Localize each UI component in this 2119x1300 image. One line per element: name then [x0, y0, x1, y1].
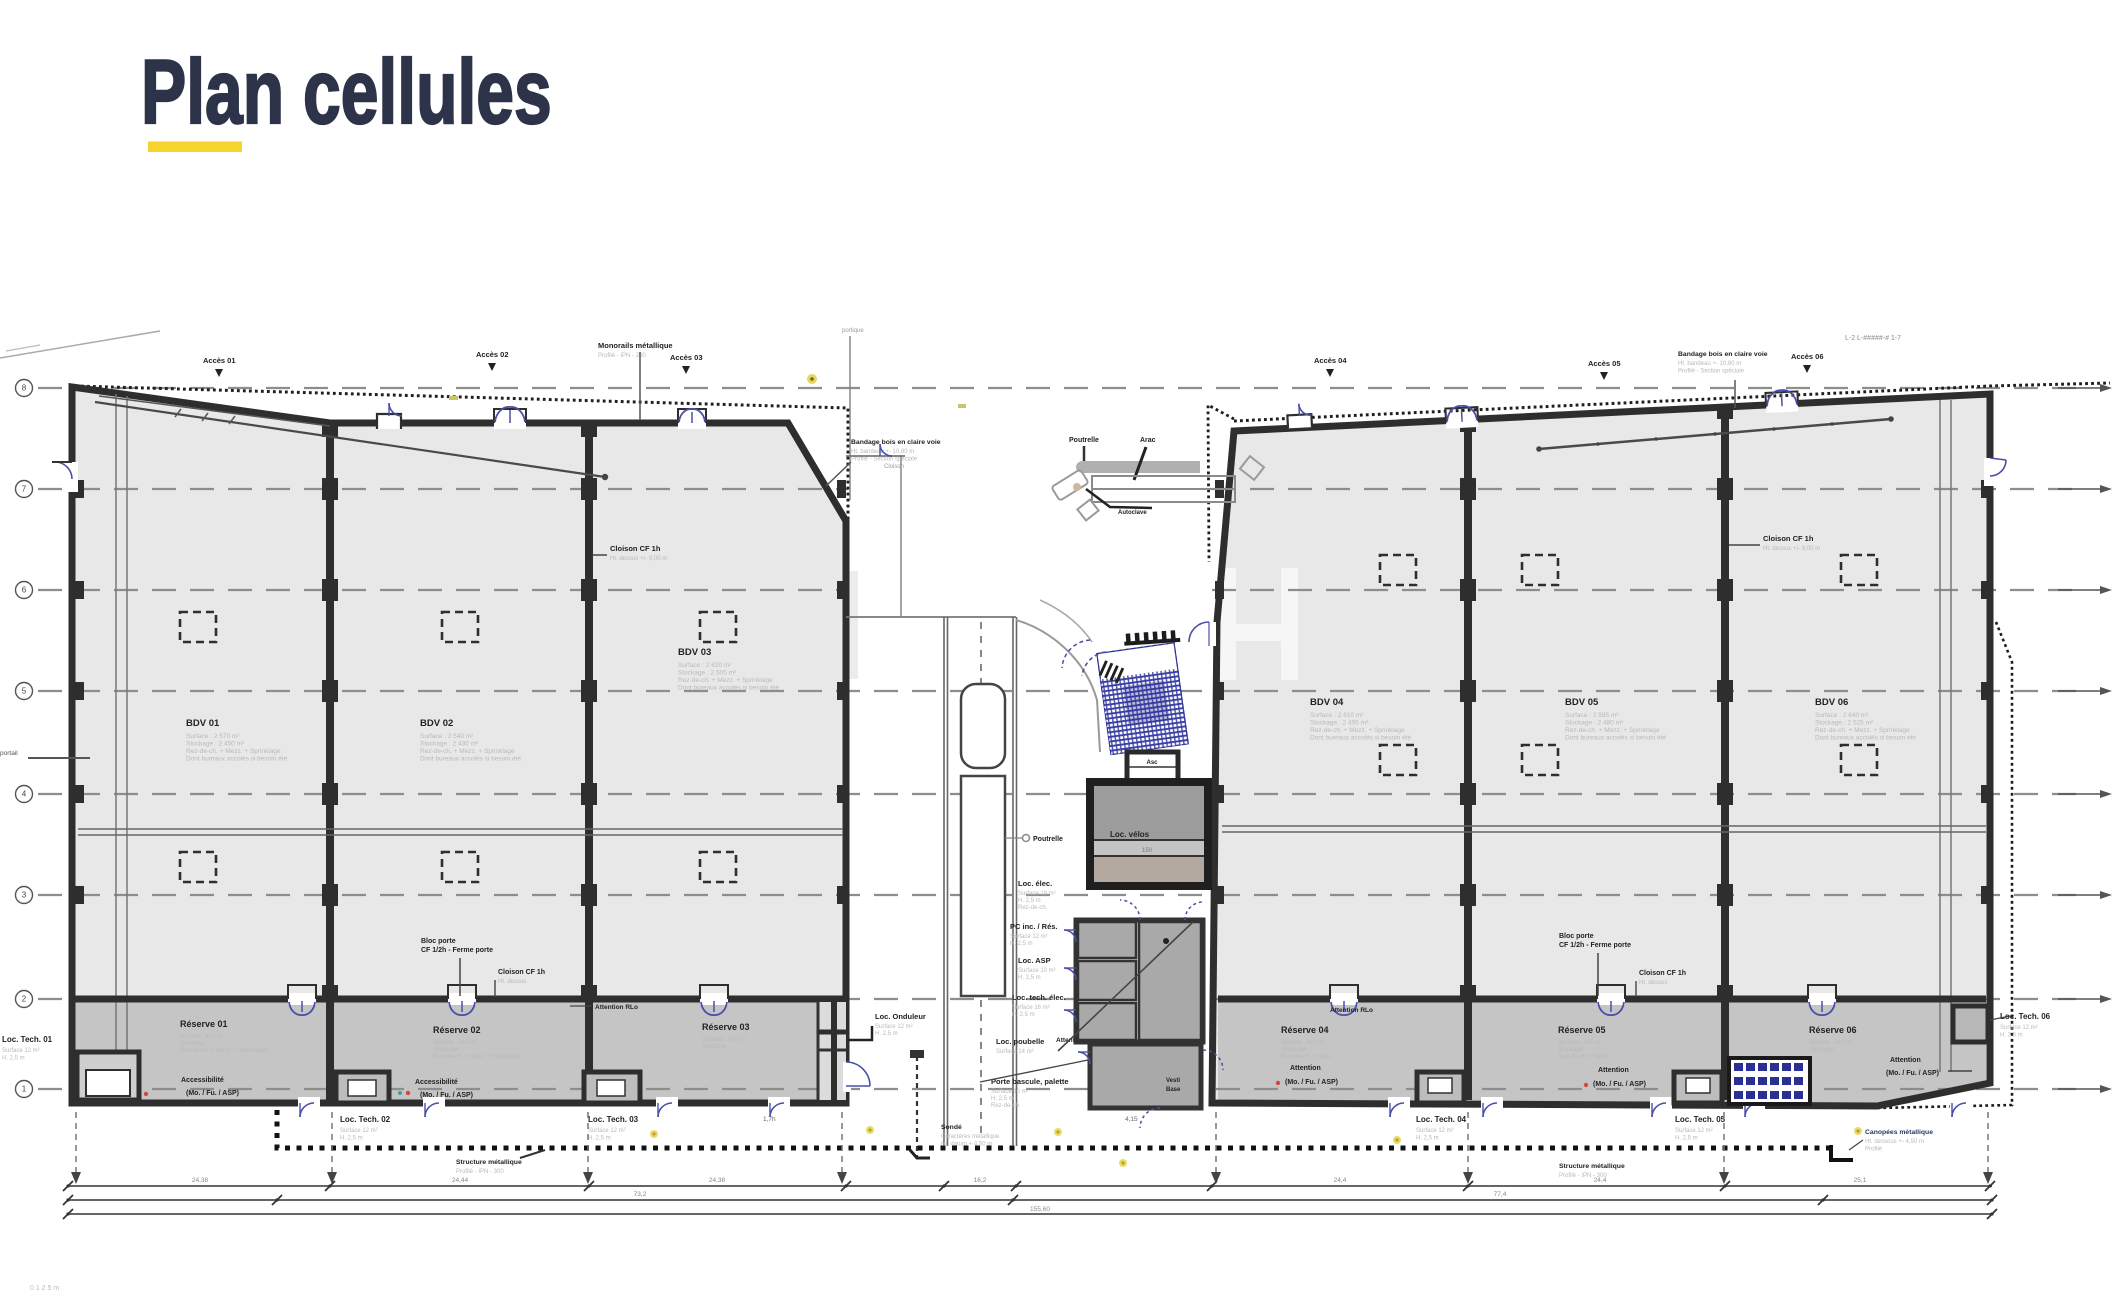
- svg-text:Loc. Tech. 03: Loc. Tech. 03: [588, 1115, 639, 1124]
- svg-text:Cloison CF 1h: Cloison CF 1h: [1763, 534, 1814, 543]
- svg-text:Stockage: Stockage: [702, 1044, 728, 1050]
- svg-text:H. 2,5 m: H. 2,5 m: [1675, 1136, 1698, 1142]
- svg-text:Surface 12 m²: Surface 12 m²: [588, 1128, 626, 1134]
- svg-text:Rez-de-ch. + Mezz.: Rez-de-ch. + Mezz.: [1281, 1054, 1334, 1060]
- svg-text:Profilé - IPN - 200: Profilé - IPN - 200: [598, 353, 646, 359]
- svg-text:Rez-de-ch. + Mezz. + Sprinklag: Rez-de-ch. + Mezz. + Sprinklage: [1565, 727, 1660, 734]
- svg-text:Profilé: Profilé: [1865, 1147, 1883, 1153]
- svg-text:H. 2,5 m: H. 2,5 m: [340, 1136, 363, 1142]
- svg-text:Dont bureaux accolés si besoin: Dont bureaux accolés si besoin été: [186, 756, 288, 763]
- svg-text:24,44: 24,44: [452, 1177, 469, 1184]
- svg-text:Rez-de-ch. + Mezz. + Sprinklag: Rez-de-ch. + Mezz. + Sprinklage: [1815, 727, 1910, 734]
- svg-text:portique: portique: [842, 328, 864, 334]
- svg-text:Surface : 2 620 m²: Surface : 2 620 m²: [678, 662, 732, 669]
- svg-text:Base: Base: [1166, 1087, 1181, 1093]
- svg-text:Surface : 2 570 m²: Surface : 2 570 m²: [186, 733, 240, 740]
- svg-text:Surface : 2 595 m²: Surface : 2 595 m²: [1565, 712, 1619, 719]
- svg-text:Profilé - Section spéciale: Profilé - Section spéciale: [1678, 369, 1745, 375]
- svg-text:Asc: Asc: [1146, 760, 1158, 766]
- svg-text:Stockage: Stockage: [1281, 1047, 1307, 1053]
- svg-text:Rez-de-ch. + Mezz. + Sprinklag: Rez-de-ch. + Mezz. + Sprinklage: [433, 1054, 521, 1060]
- svg-text:Bloc porte: Bloc porte: [421, 938, 456, 945]
- svg-text:Ht. dessus: Ht. dessus: [498, 979, 526, 985]
- svg-text:Loc. poubelle: Loc. poubelle: [996, 1037, 1044, 1046]
- svg-text:Dont bureaux accolés si besoin: Dont bureaux accolés si besoin été: [1565, 735, 1667, 742]
- svg-text:Autoclave: Autoclave: [1118, 510, 1147, 516]
- svg-text:Surface 10 m²: Surface 10 m²: [991, 1089, 1029, 1095]
- svg-text:Stockage: Stockage: [1558, 1047, 1584, 1053]
- svg-text:Ht. dessus +/- 9,00 m: Ht. dessus +/- 9,00 m: [610, 556, 667, 562]
- svg-text:2: 2: [22, 995, 27, 1004]
- svg-text:Surface : 2 540 m²: Surface : 2 540 m²: [420, 733, 474, 740]
- svg-text:H. 2,5 m: H. 2,5 m: [2000, 1033, 2023, 1039]
- svg-text:Structure métallique: Structure métallique: [1559, 1163, 1625, 1170]
- svg-text:Accès 03: Accès 03: [670, 353, 703, 362]
- svg-text:Attention: Attention: [1598, 1067, 1629, 1074]
- svg-text:Surface 12 m²: Surface 12 m²: [2000, 1025, 2038, 1031]
- svg-text:Ht. dessous +- 4,50 m: Ht. dessous +- 4,50 m: [1865, 1139, 1924, 1145]
- svg-text:Profilé - Section spéciale: Profilé - Section spéciale: [851, 457, 918, 463]
- svg-text:Rez-de-ch. + Mezz. + Sprinklag: Rez-de-ch. + Mezz. + Sprinklage: [186, 748, 281, 755]
- svg-text:Bandage bois en claire voie: Bandage bois en claire voie: [851, 439, 941, 446]
- svg-text:Stockage : 2 495 m²: Stockage : 2 495 m²: [1310, 720, 1369, 727]
- svg-text:Accessibilité: Accessibilité: [415, 1079, 458, 1086]
- svg-text:Accès 04: Accès 04: [1314, 356, 1347, 365]
- svg-text:Stockage : 2 480 m²: Stockage : 2 480 m²: [1565, 720, 1624, 727]
- svg-text:25,1: 25,1: [1854, 1177, 1867, 1184]
- svg-text:Réserve 04: Réserve 04: [1281, 1025, 1329, 1035]
- svg-text:Accès 01: Accès 01: [203, 356, 236, 365]
- svg-text:Réserve 06: Réserve 06: [1809, 1025, 1857, 1035]
- svg-text:Surface : 415 m²: Surface : 415 m²: [433, 1040, 477, 1046]
- svg-text:Surface : 2 640 m²: Surface : 2 640 m²: [1815, 712, 1869, 719]
- svg-text:(Mo. / Fu. / ASP): (Mo. / Fu. / ASP): [1593, 1081, 1646, 1088]
- svg-text:Ht. dessus +/- 9,00 m: Ht. dessus +/- 9,00 m: [1763, 546, 1820, 552]
- svg-text:Canopées métallique: Canopées métallique: [1865, 1129, 1933, 1136]
- svg-text:24,4: 24,4: [1594, 1177, 1607, 1184]
- svg-text:Bandage bois en claire voie: Bandage bois en claire voie: [1678, 351, 1768, 358]
- svg-text:H. 2,5 m: H. 2,5 m: [991, 1096, 1014, 1102]
- svg-text:(Mo. / Fu. / ASP): (Mo. / Fu. / ASP): [186, 1090, 239, 1097]
- svg-text:Attention RLo: Attention RLo: [1330, 1007, 1373, 1014]
- svg-text:BDV 04: BDV 04: [1310, 697, 1344, 708]
- svg-text:16,2: 16,2: [974, 1177, 987, 1184]
- svg-text:Surface 16 m²: Surface 16 m²: [1012, 1005, 1050, 1011]
- svg-text:L-2 L-#####-# 1-7: L-2 L-#####-# 1-7: [1845, 335, 1901, 342]
- svg-text:Dont bureaux accolés si besoin: Dont bureaux accolés si besoin été: [1815, 735, 1917, 742]
- svg-text:Stockage : 2 525 m²: Stockage : 2 525 m²: [1815, 720, 1874, 727]
- svg-text:(Mo. / Fu. / ASP): (Mo. / Fu. / ASP): [1886, 1070, 1939, 1077]
- svg-text:24,38: 24,38: [192, 1177, 209, 1184]
- svg-text:H. 2,5 m: H. 2,5 m: [1416, 1136, 1439, 1142]
- svg-text:Cloison CF 1h: Cloison CF 1h: [498, 969, 545, 976]
- svg-text:H. 2,5 m: H. 2,5 m: [875, 1031, 898, 1037]
- svg-text:Réserve 02: Réserve 02: [433, 1025, 481, 1035]
- svg-text:Loc. élec.: Loc. élec.: [1018, 879, 1052, 888]
- svg-text:Poutrelle: Poutrelle: [1033, 836, 1063, 843]
- svg-text:Poutrelle: Poutrelle: [1069, 437, 1099, 444]
- svg-text:H. 2,5 m: H. 2,5 m: [1018, 898, 1041, 904]
- svg-text:(Mo. / Fu. / ASP): (Mo. / Fu. / ASP): [1285, 1079, 1338, 1086]
- svg-text:H. 2,5 m: H. 2,5 m: [588, 1136, 611, 1142]
- svg-text:3: 3: [22, 891, 27, 900]
- svg-text:Surface 10 m²: Surface 10 m²: [1018, 968, 1056, 974]
- svg-text:CF 1/2h - Ferme porte: CF 1/2h - Ferme porte: [1559, 942, 1631, 949]
- svg-text:Attention: Attention: [1890, 1057, 1921, 1064]
- svg-text:Réserve 03: Réserve 03: [702, 1022, 750, 1032]
- svg-text:Rez-de-ch. + Mezz. + Sprinklag: Rez-de-ch. + Mezz. + Sprinklage: [1310, 727, 1405, 734]
- svg-text:PC inc. / Rés.: PC inc. / Rés.: [1010, 922, 1058, 931]
- svg-text:Vesti: Vesti: [1166, 1078, 1180, 1084]
- svg-text:Loc. Tech. 05: Loc. Tech. 05: [1675, 1115, 1726, 1124]
- svg-text:7: 7: [22, 485, 27, 494]
- svg-text:BDV 01: BDV 01: [186, 718, 220, 729]
- svg-text:Stockage: Stockage: [180, 1041, 206, 1047]
- svg-text:Surface : 415 m²: Surface : 415 m²: [1558, 1040, 1602, 1046]
- svg-text:Attention RLo: Attention RLo: [595, 1004, 638, 1011]
- svg-text:Dont bureaux accolés si besoin: Dont bureaux accolés si besoin été: [678, 685, 780, 692]
- svg-text:Stockage: Stockage: [433, 1047, 459, 1053]
- svg-text:73,2: 73,2: [634, 1191, 647, 1198]
- svg-text:Structure métallique: Structure métallique: [456, 1159, 522, 1166]
- svg-text:Réserve 05: Réserve 05: [1558, 1025, 1606, 1035]
- svg-text:Surface 12 m²: Surface 12 m²: [875, 1024, 913, 1030]
- svg-text:BDV 05: BDV 05: [1565, 697, 1599, 708]
- svg-text:Sondé: Sondé: [941, 1124, 962, 1131]
- svg-text:Loc. Tech. 01: Loc. Tech. 01: [2, 1035, 53, 1044]
- svg-text:Surface 14 m²: Surface 14 m²: [996, 1049, 1034, 1055]
- svg-text:Stockage : 2 430 m²: Stockage : 2 430 m²: [420, 741, 479, 748]
- svg-text:Caractères métallique: Caractères métallique: [941, 1134, 1000, 1140]
- svg-text:Surface 12 m²: Surface 12 m²: [1675, 1128, 1713, 1134]
- svg-text:Surface : 420 m²: Surface : 420 m²: [1281, 1040, 1325, 1046]
- svg-text:Monorails métallique: Monorails métallique: [598, 341, 673, 350]
- svg-text:0 1 2 5 m: 0 1 2 5 m: [30, 1285, 59, 1292]
- svg-text:Accès 02: Accès 02: [476, 350, 509, 359]
- svg-text:H. 2,5 m: H. 2,5 m: [1010, 941, 1033, 947]
- svg-text:Ht. bandeau +- 10,80 m: Ht. bandeau +- 10,80 m: [1678, 361, 1741, 367]
- svg-text:Loc. Tech. 02: Loc. Tech. 02: [340, 1115, 391, 1124]
- svg-text:150: 150: [1142, 848, 1153, 854]
- svg-text:Bloc porte: Bloc porte: [1559, 933, 1594, 940]
- svg-text:Surface 12 m²: Surface 12 m²: [1416, 1128, 1454, 1134]
- svg-text:CF 1/2h - Ferme porte: CF 1/2h - Ferme porte: [421, 947, 493, 954]
- svg-text:BDV 06: BDV 06: [1815, 697, 1848, 708]
- svg-text:Accès 05: Accès 05: [1588, 359, 1621, 368]
- svg-text:24,4: 24,4: [1334, 1177, 1347, 1184]
- svg-text:Loc. Onduleur: Loc. Onduleur: [875, 1012, 926, 1021]
- svg-text:Porte bascule, palette: Porte bascule, palette: [991, 1077, 1069, 1086]
- svg-text:Surface : 410 m²: Surface : 410 m²: [702, 1037, 746, 1043]
- svg-text:4: 4: [22, 790, 27, 799]
- svg-text:4,15: 4,15: [1125, 1116, 1138, 1123]
- svg-text:Ht. datum + 4,50 m: Ht. datum + 4,50 m: [941, 1142, 992, 1148]
- svg-text:Dont bureaux accolés si besoin: Dont bureaux accolés si besoin été: [1310, 735, 1412, 742]
- svg-text:Surface 12 m²: Surface 12 m²: [2, 1048, 40, 1054]
- svg-text:H. 2,5 m: H. 2,5 m: [1018, 975, 1041, 981]
- svg-text:Cloison CF 1h: Cloison CF 1h: [610, 544, 661, 553]
- svg-text:Ht. dessus: Ht. dessus: [1639, 980, 1667, 986]
- svg-text:BDV 02: BDV 02: [420, 718, 453, 729]
- svg-text:Rez-de-ch. + Mezz. + Sprinklag: Rez-de-ch. + Mezz. + Sprinklage: [678, 677, 773, 684]
- svg-text:Rez-de-ch. + Mezz. + Sprinklag: Rez-de-ch. + Mezz. + Sprinklage: [420, 748, 515, 755]
- svg-text:24,38: 24,38: [709, 1177, 726, 1184]
- svg-text:Dont bureaux accolés si besoin: Dont bureaux accolés si besoin été: [420, 756, 522, 763]
- svg-text:Surface : 410 m²: Surface : 410 m²: [1809, 1040, 1853, 1046]
- svg-text:Loc. vélos: Loc. vélos: [1110, 830, 1150, 839]
- svg-text:Cloison: Cloison: [884, 464, 904, 470]
- svg-text:Rez-de-ch. + Mezz.: Rez-de-ch. + Mezz.: [1558, 1054, 1611, 1060]
- svg-text:77,4: 77,4: [1494, 1191, 1507, 1198]
- svg-text:Arac: Arac: [1140, 437, 1156, 444]
- svg-text:Surface 18 m²: Surface 18 m²: [1018, 891, 1056, 897]
- svg-text:1: 1: [22, 1085, 27, 1094]
- svg-text:Profilé - IPN - 300: Profilé - IPN - 300: [456, 1169, 504, 1175]
- svg-text:Loc. tech. élec.: Loc. tech. élec.: [1012, 993, 1066, 1002]
- svg-text:Loc. Tech. 04: Loc. Tech. 04: [1416, 1115, 1467, 1124]
- svg-text:Rez-de-ch.: Rez-de-ch.: [991, 1103, 1021, 1109]
- svg-text:Accès 06: Accès 06: [1791, 352, 1824, 361]
- svg-text:Loc. ASP: Loc. ASP: [1018, 956, 1051, 965]
- svg-text:Rez-de-ch.: Rez-de-ch.: [1018, 905, 1048, 911]
- svg-text:1,7h: 1,7h: [763, 1116, 776, 1123]
- svg-text:Rez-de-ch. + Mezz. + Sprinklag: Rez-de-ch. + Mezz. + Sprinklage: [180, 1048, 268, 1054]
- svg-text:155,60: 155,60: [1030, 1206, 1050, 1213]
- svg-text:5: 5: [22, 687, 27, 696]
- svg-text:H. 2,5 m: H. 2,5 m: [1012, 1012, 1035, 1018]
- svg-text:Accessibilité: Accessibilité: [181, 1077, 224, 1084]
- svg-text:BDV 03: BDV 03: [678, 647, 711, 658]
- svg-text:(Mo. / Fu. / ASP): (Mo. / Fu. / ASP): [420, 1092, 473, 1099]
- svg-text:Réserve 01: Réserve 01: [180, 1019, 228, 1029]
- svg-text:Surface : 2 610 m²: Surface : 2 610 m²: [1310, 712, 1364, 719]
- svg-text:8: 8: [22, 384, 27, 393]
- svg-text:6: 6: [22, 586, 27, 595]
- svg-text:Surface 12 m²: Surface 12 m²: [1010, 934, 1048, 940]
- svg-text:portail: portail: [0, 750, 18, 757]
- svg-text:H. 2,5 m: H. 2,5 m: [2, 1056, 25, 1062]
- svg-text:Plan cellules: Plan cellules: [141, 41, 552, 143]
- svg-text:Surface 12 m²: Surface 12 m²: [340, 1128, 378, 1134]
- svg-text:Surface : 420 m²: Surface : 420 m²: [180, 1034, 224, 1040]
- svg-text:Stockage : 2 450 m²: Stockage : 2 450 m²: [186, 741, 245, 748]
- svg-text:Cloison CF 1h: Cloison CF 1h: [1639, 970, 1686, 977]
- svg-text:Stockage: Stockage: [1809, 1047, 1835, 1053]
- svg-text:Attention: Attention: [1290, 1065, 1321, 1072]
- svg-text:Stockage : 2 505 m²: Stockage : 2 505 m²: [678, 670, 737, 677]
